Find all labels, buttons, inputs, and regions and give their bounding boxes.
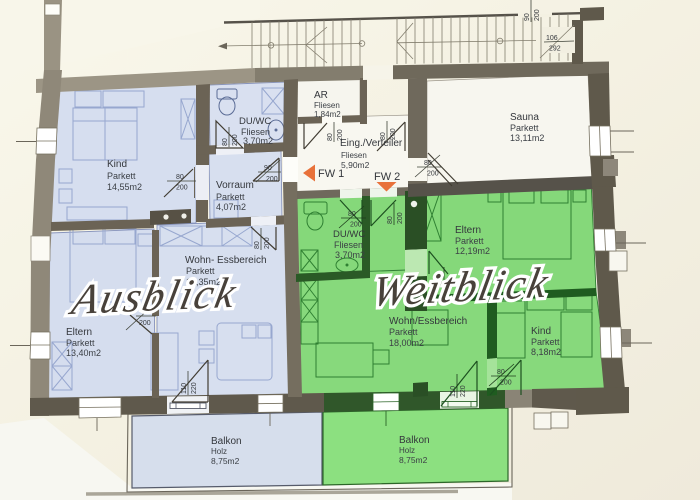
svg-text:13,40m2: 13,40m2 [66, 348, 101, 358]
svg-text:80: 80 [222, 138, 229, 146]
svg-text:3,70m2: 3,70m2 [243, 136, 273, 146]
svg-text:200: 200 [534, 9, 541, 21]
svg-text:Vorraum: Vorraum [216, 180, 254, 191]
svg-text:1,84m2: 1,84m2 [314, 110, 341, 119]
svg-text:13,11m2: 13,11m2 [510, 133, 544, 143]
svg-text:110: 110 [450, 386, 457, 397]
svg-text:80: 80 [380, 132, 387, 140]
svg-text:8,18m2: 8,18m2 [531, 347, 561, 357]
svg-text:80: 80 [387, 216, 394, 224]
svg-text:Parkett: Parkett [455, 236, 484, 246]
svg-text:Parkett: Parkett [107, 171, 136, 181]
svg-text:3,70m2: 3,70m2 [335, 250, 365, 260]
svg-text:90: 90 [524, 13, 531, 21]
svg-text:200: 200 [427, 171, 439, 178]
svg-text:Wohn- Essbereich: Wohn- Essbereich [185, 255, 267, 266]
svg-text:200: 200 [176, 185, 188, 192]
svg-text:Kind: Kind [531, 326, 551, 337]
svg-text:5,90m2: 5,90m2 [341, 160, 370, 170]
svg-text:200: 200 [397, 212, 404, 224]
svg-text:Weitblick: Weitblick [368, 259, 553, 316]
svg-text:Parkett: Parkett [531, 337, 560, 347]
svg-text:Parkett: Parkett [66, 338, 95, 348]
svg-text:200: 200 [500, 380, 512, 387]
svg-text:Sauna: Sauna [510, 112, 539, 123]
svg-text:18,00m2: 18,00m2 [389, 338, 424, 348]
svg-text:200: 200 [266, 176, 278, 183]
svg-text:80: 80 [254, 241, 261, 249]
svg-text:FW 1: FW 1 [318, 168, 344, 180]
svg-text:Wohn/Essbereich: Wohn/Essbereich [389, 316, 467, 327]
svg-text:106: 106 [546, 35, 558, 42]
svg-text:200: 200 [350, 222, 362, 229]
svg-text:200: 200 [390, 128, 397, 140]
svg-text:14,55m2: 14,55m2 [107, 182, 142, 192]
svg-text:110: 110 [181, 383, 188, 394]
svg-text:80: 80 [176, 174, 184, 181]
svg-text:Holz: Holz [211, 447, 227, 456]
svg-text:80: 80 [497, 369, 505, 376]
svg-text:200: 200 [337, 129, 344, 141]
svg-text:4,07m2: 4,07m2 [216, 202, 246, 212]
svg-text:8,75m2: 8,75m2 [211, 456, 240, 466]
svg-text:Balkon: Balkon [211, 436, 242, 447]
svg-text:Parkett: Parkett [510, 123, 539, 133]
svg-text:220: 220 [191, 382, 198, 394]
svg-text:DU/WC: DU/WC [333, 229, 365, 240]
svg-text:Eltern: Eltern [455, 225, 481, 236]
svg-text:Fliesen: Fliesen [334, 240, 363, 250]
svg-text:80: 80 [327, 133, 334, 141]
svg-text:200: 200 [232, 134, 239, 146]
svg-text:Balkon: Balkon [399, 435, 430, 446]
svg-text:Fliesen: Fliesen [314, 101, 340, 110]
svg-text:DU/WC: DU/WC [239, 116, 271, 127]
svg-text:Ausblick: Ausblick [65, 269, 242, 324]
svg-text:12,19m2: 12,19m2 [455, 246, 490, 256]
svg-text:Kind: Kind [107, 159, 127, 170]
svg-text:Holz: Holz [399, 446, 415, 455]
svg-text:292: 292 [549, 46, 561, 53]
svg-text:AR: AR [314, 90, 328, 101]
svg-text:8,75m2: 8,75m2 [399, 455, 428, 465]
svg-text:Eltern: Eltern [66, 327, 92, 338]
svg-text:Fliesen: Fliesen [341, 151, 367, 160]
svg-text:200: 200 [139, 320, 151, 327]
svg-text:Parkett: Parkett [216, 192, 245, 202]
svg-text:200: 200 [264, 237, 271, 249]
svg-text:FW 2: FW 2 [374, 171, 400, 183]
svg-text:Parkett: Parkett [389, 327, 418, 337]
svg-text:220: 220 [460, 385, 467, 397]
